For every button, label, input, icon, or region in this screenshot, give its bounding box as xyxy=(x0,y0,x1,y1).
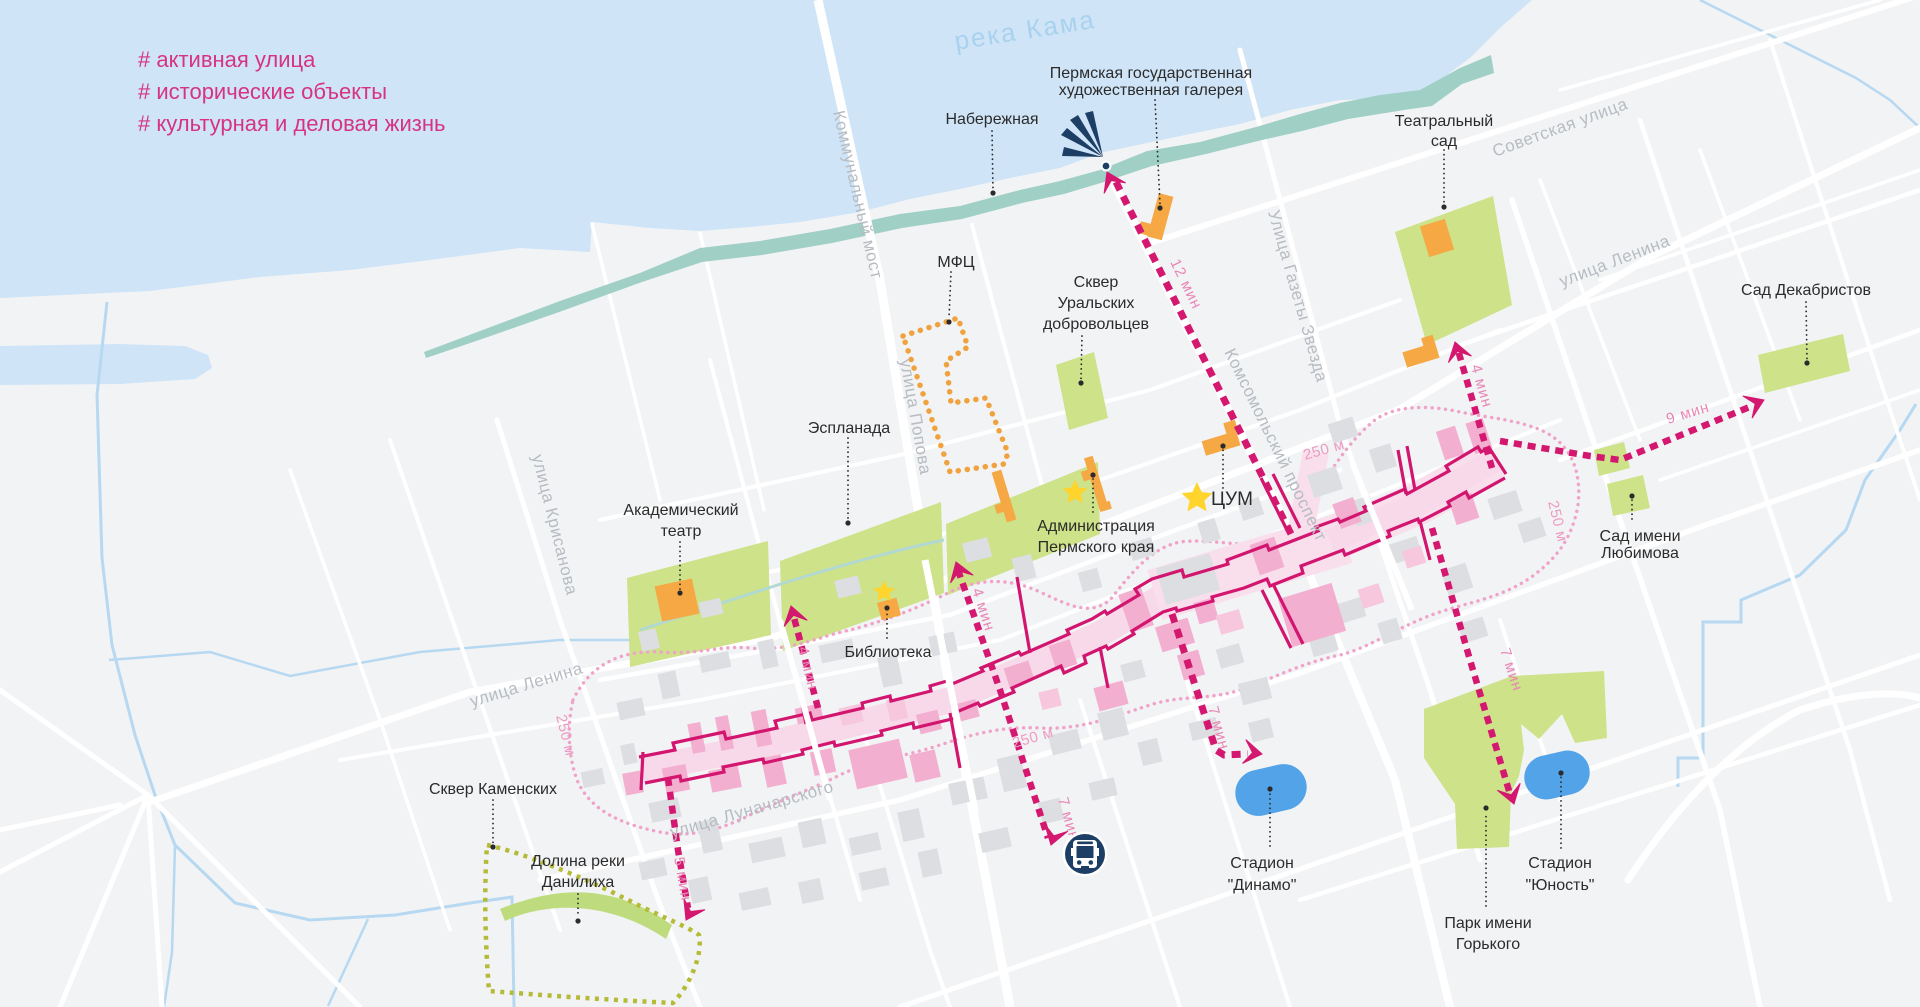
svg-text:театр: театр xyxy=(661,523,702,540)
svg-text:Долина реки: Долина реки xyxy=(531,853,625,870)
svg-text:Данилиха: Данилиха xyxy=(542,874,615,891)
svg-text:# активная улица: # активная улица xyxy=(138,47,316,72)
svg-text:МФЦ: МФЦ xyxy=(937,254,974,271)
svg-text:Стадион: Стадион xyxy=(1230,855,1294,872)
svg-text:Любимова: Любимова xyxy=(1601,545,1679,562)
svg-text:"Динамо": "Динамо" xyxy=(1228,877,1297,894)
svg-text:добровольцев: добровольцев xyxy=(1043,316,1149,333)
svg-text:художественная галерея: художественная галерея xyxy=(1059,82,1243,99)
svg-text:Театральный: Театральный xyxy=(1395,113,1493,130)
svg-text:сад: сад xyxy=(1431,133,1458,150)
svg-text:Библиотека: Библиотека xyxy=(845,644,932,661)
svg-text:Набережная: Набережная xyxy=(945,111,1038,128)
svg-text:Парк имени: Парк имени xyxy=(1444,915,1531,932)
svg-text:Пермская государственная: Пермская государственная xyxy=(1050,65,1252,82)
svg-text:Уральских: Уральских xyxy=(1058,295,1135,312)
svg-text:Сквер: Сквер xyxy=(1074,274,1119,291)
svg-text:"Юность": "Юность" xyxy=(1526,877,1595,894)
svg-text:Стадион: Стадион xyxy=(1528,855,1592,872)
svg-text:ЦУМ: ЦУМ xyxy=(1211,489,1253,510)
svg-text:Сквер Каменских: Сквер Каменских xyxy=(429,781,557,798)
svg-text:Администрация: Администрация xyxy=(1037,518,1155,535)
svg-text:# культурная и деловая жизнь: # культурная и деловая жизнь xyxy=(138,111,446,136)
svg-text:Пермского края: Пермского края xyxy=(1038,539,1155,556)
svg-text:Эспланада: Эспланада xyxy=(808,420,890,437)
svg-text:Академический: Академический xyxy=(623,502,738,519)
svg-text:Горького: Горького xyxy=(1456,936,1520,953)
svg-text:# исторические объекты: # исторические объекты xyxy=(138,79,387,104)
svg-text:Сад имени: Сад имени xyxy=(1599,528,1680,545)
svg-text:Сад Декабристов: Сад Декабристов xyxy=(1741,282,1871,299)
